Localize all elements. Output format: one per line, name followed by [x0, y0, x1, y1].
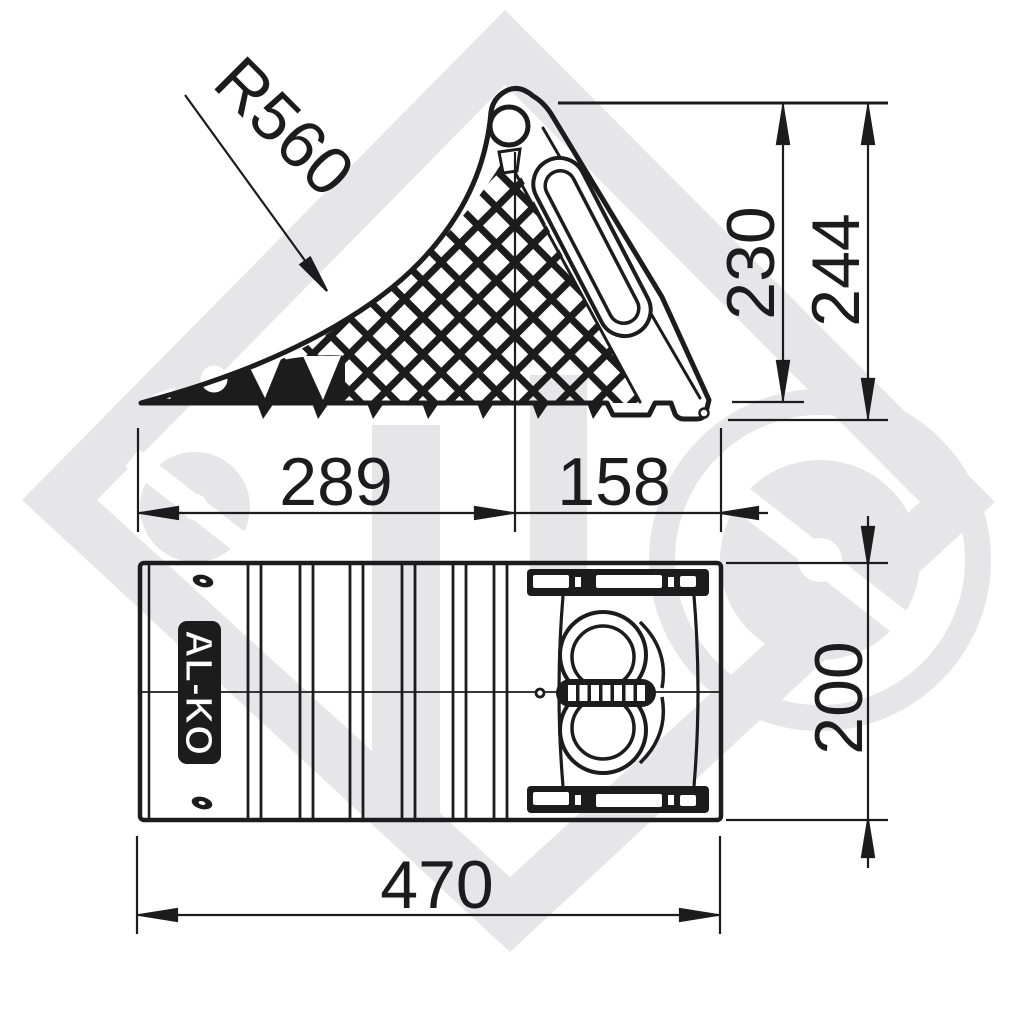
label-244: 244	[798, 213, 874, 326]
foot-pin	[700, 409, 709, 418]
apex-hole	[490, 107, 528, 145]
label-289: 289	[279, 444, 392, 520]
pivot-dot	[536, 689, 544, 697]
apex-notch	[499, 149, 520, 173]
watermark-letter-middle	[372, 375, 587, 825]
mount-bar-top	[527, 569, 709, 596]
mount-bar-bottom	[527, 786, 709, 813]
brand-logo: AL-KO	[177, 621, 221, 764]
wheel-chock-drawing: AL-KO	[0, 0, 1024, 1024]
label-200: 200	[801, 641, 877, 754]
brand-logo-text: AL-KO	[177, 630, 219, 756]
label-158: 158	[557, 444, 670, 520]
label-470: 470	[380, 847, 493, 923]
handle-hinge-slots	[568, 685, 645, 701]
label-230: 230	[713, 206, 789, 319]
technical-drawing-canvas: AL-KO	[0, 0, 1024, 1024]
